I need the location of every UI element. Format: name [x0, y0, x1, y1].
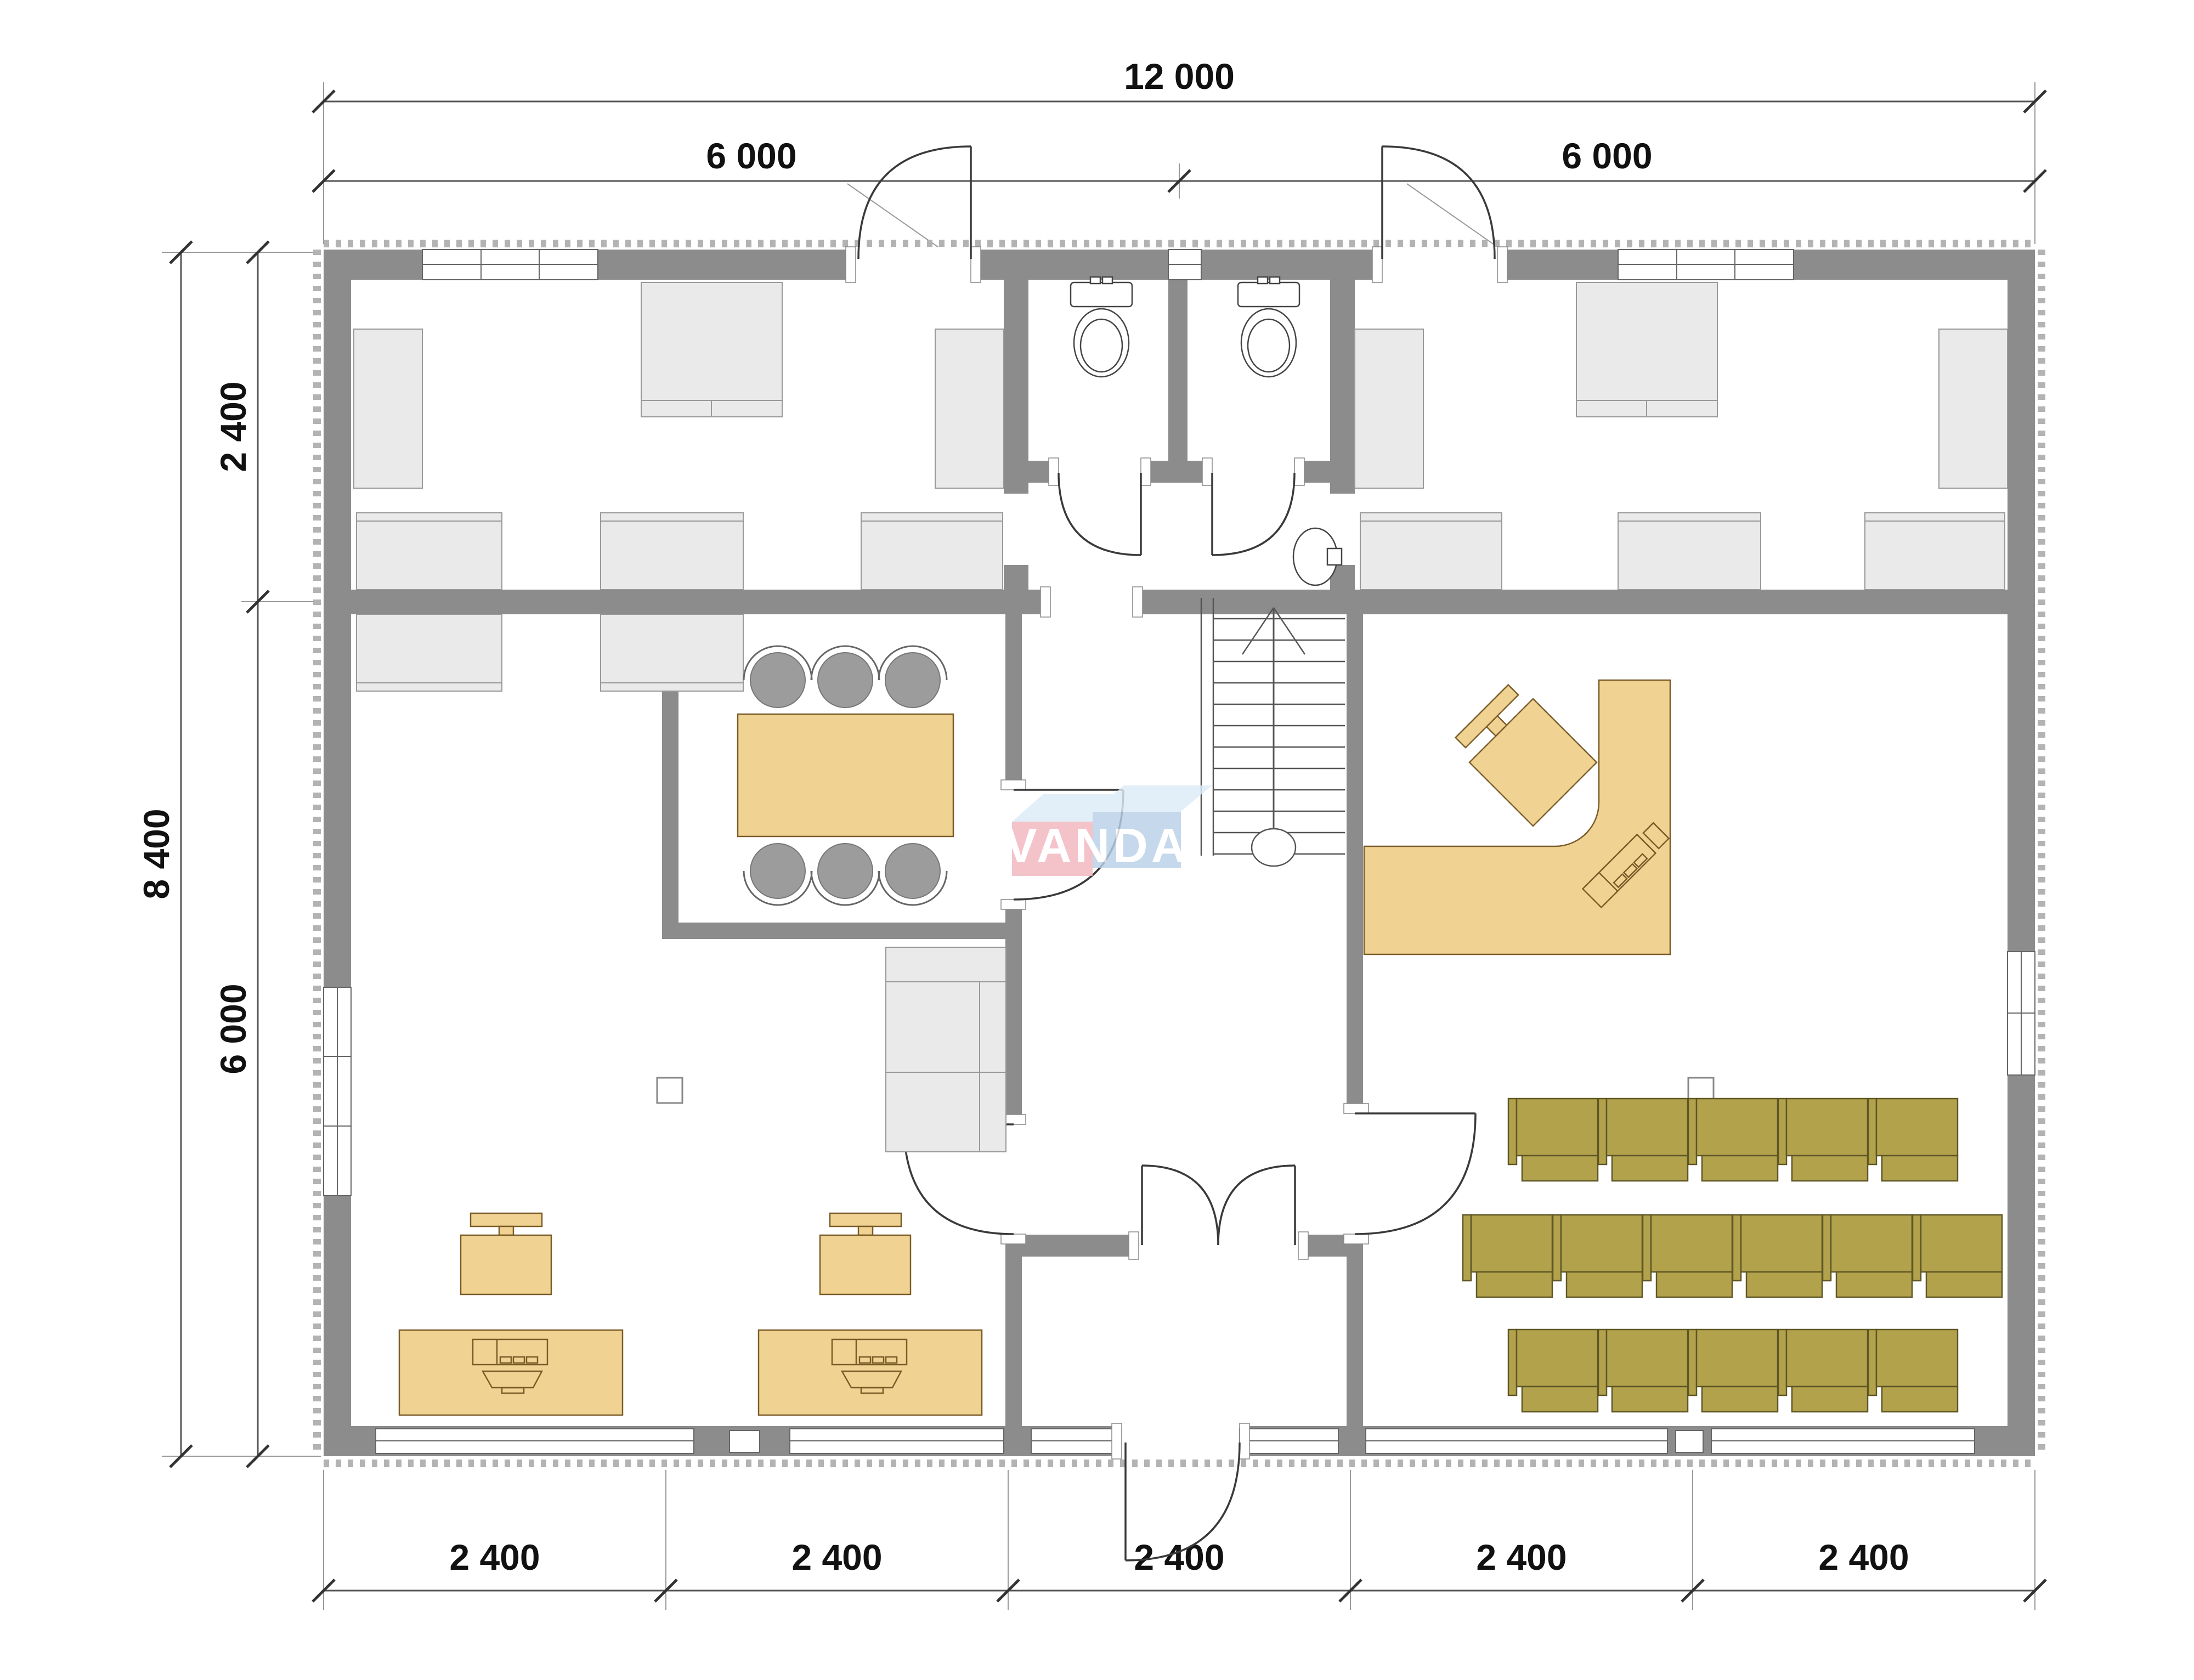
workstation-2 [759, 1213, 982, 1415]
wall-core-right [1347, 614, 1363, 1426]
wall-core-left [1005, 614, 1022, 1426]
dim-top-left: 6 000 [706, 135, 796, 176]
window-left-wall [324, 987, 351, 1196]
dim-bottom-5: 2 400 [1818, 1537, 1909, 1577]
reception [1364, 680, 1670, 954]
chair-row-1 [1508, 1099, 1958, 1181]
wardrobe-right-office-west [1355, 329, 1423, 488]
workstation-1 [399, 1213, 623, 1415]
vanda-watermark-logo: VANDA [1005, 785, 1212, 876]
wardrobe-left-office-east [935, 329, 1004, 488]
desk-surface [759, 1330, 982, 1415]
wardrobe-right-office-east [1939, 329, 2008, 488]
dim-bottom-2: 2 400 [791, 1537, 882, 1577]
dim-left-upper: 2 400 [213, 381, 253, 472]
dim-top-right: 6 000 [1562, 135, 1652, 176]
desk-surface [399, 1330, 623, 1415]
storage-unit-left-hall [886, 947, 1006, 1152]
stair-direction-arrow [1242, 608, 1305, 866]
reception-chair [1450, 680, 1597, 826]
window-top-center-small [1168, 250, 1201, 280]
cabinet-right-office-top [1576, 282, 1717, 417]
chair-row-2 [1463, 1215, 2002, 1297]
dim-bottom-4: 2 400 [1476, 1537, 1567, 1577]
desks-left-office [357, 513, 1003, 590]
wall-interior-main-horizontal [351, 590, 2008, 614]
meeting-table [738, 714, 953, 836]
window-top-left [422, 250, 598, 280]
logo-text: VANDA [1005, 818, 1189, 873]
meeting-room-furniture [738, 646, 953, 905]
desks-right-office [1360, 513, 2005, 590]
toilet-1 [1071, 277, 1132, 377]
floor-plan-canvas: 12 000 6 000 6 000 8 400 2 400 6 000 2 4… [0, 0, 2194, 1680]
chair-rows [1463, 1099, 2002, 1412]
dim-bottom-1: 2 400 [449, 1537, 540, 1577]
wardrobe-left-office-west [354, 329, 422, 488]
wall-exterior-left [324, 250, 351, 1456]
desks-left-hall [357, 614, 743, 691]
toilet-2 [1238, 277, 1299, 377]
wall-meeting-bottom [662, 923, 1022, 939]
window-top-right [1618, 250, 1794, 280]
wall-between-wc [1168, 280, 1188, 483]
window-right-wall [2008, 952, 2035, 1075]
chair-row-3 [1508, 1330, 1958, 1412]
dim-left-lower: 6 000 [213, 983, 253, 1074]
door-core-to-right-hall [1355, 1113, 1475, 1234]
staircase [1201, 598, 1345, 866]
wall-exterior-right [2008, 250, 2035, 1456]
column-left-hall [657, 1078, 682, 1103]
dim-top-total: 12 000 [1124, 56, 1235, 97]
dim-bottom-3: 2 400 [1134, 1537, 1224, 1577]
cabinet-left-office-top [641, 282, 782, 417]
dim-left-total: 8 400 [136, 808, 177, 899]
